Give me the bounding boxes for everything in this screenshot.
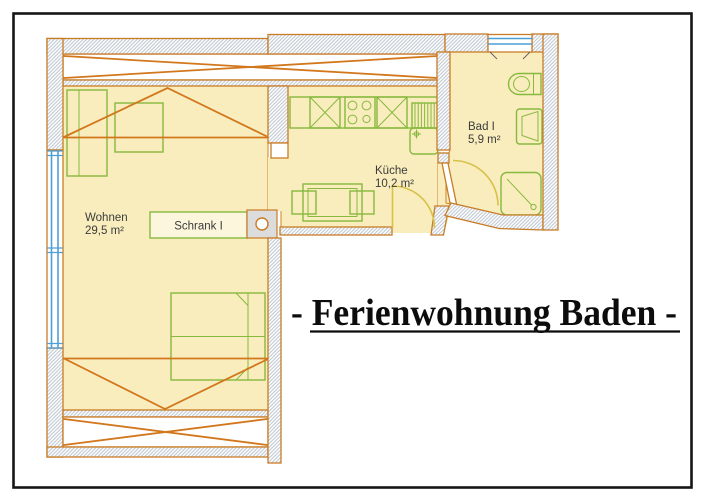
wall-divider-lower	[268, 238, 281, 463]
door-post	[271, 143, 288, 158]
wall-left-upper	[47, 39, 63, 151]
wall-bath-top-left	[445, 34, 488, 52]
bath-door-jamb	[438, 153, 449, 163]
window-left	[47, 150, 63, 348]
living-room-floor	[63, 86, 268, 410]
label-schrank: Schrank I	[174, 221, 223, 233]
label-kueche-name: Küche	[375, 165, 408, 177]
label-bad-name: Bad I	[468, 121, 495, 133]
label-bad-area: 5,9 m²	[468, 134, 501, 146]
wall-bath-right	[543, 34, 558, 230]
wall-bottom	[47, 447, 268, 457]
wall-left-lower	[47, 348, 63, 457]
entry-door-threshold	[392, 221, 437, 233]
plan-title-group: - Ferienwohnung Baden -	[291, 292, 680, 334]
bottom-inner-strip	[63, 410, 268, 417]
wall-bath-left	[437, 52, 450, 150]
label-kueche-area: 10,2 m²	[375, 178, 414, 190]
chimney-flue	[256, 218, 268, 230]
wall-kitchen-bottom	[280, 227, 392, 235]
floor-plan-svg: Wohnen 29,5 m² Küche 10,2 m² Bad I 5,9 m…	[0, 0, 710, 502]
passage-floor	[268, 157, 288, 211]
wall-top-right	[268, 35, 445, 55]
plan-title: - Ferienwohnung Baden -	[291, 292, 677, 334]
top-inner-strip	[63, 80, 438, 86]
floor-plan-page: Wohnen 29,5 m² Küche 10,2 m² Bad I 5,9 m…	[0, 0, 710, 502]
label-wohnen-name: Wohnen	[85, 212, 128, 224]
wall-top-left	[47, 39, 268, 55]
label-wohnen-area: 29,5 m²	[85, 225, 124, 237]
wall-divider-upper	[268, 86, 288, 143]
kitchen-floor	[281, 86, 438, 227]
